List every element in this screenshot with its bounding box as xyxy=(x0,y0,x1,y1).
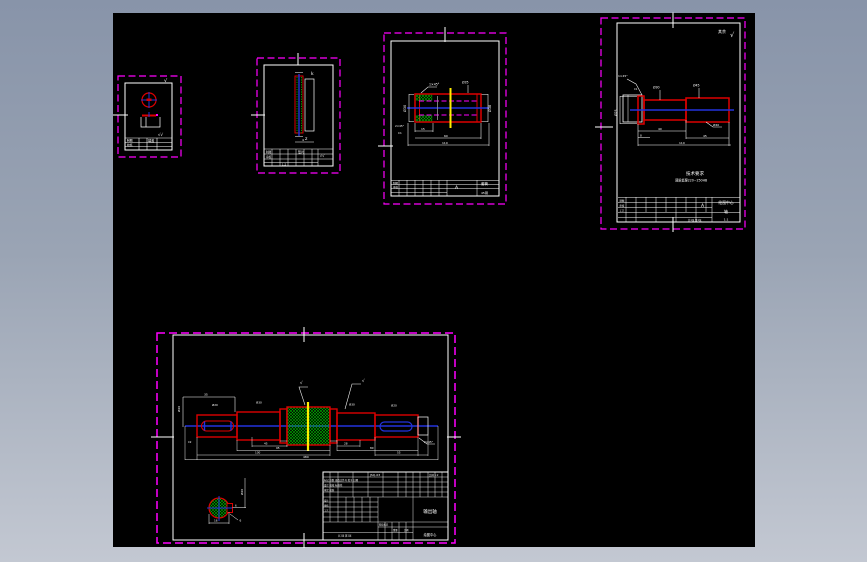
tb-part-name: 轴 xyxy=(724,208,728,214)
frame-gasket: k z 4 制图 审核 垫片 √√ 1:2 xyxy=(251,53,340,173)
dim-label: 4 xyxy=(302,138,304,142)
cad-application-window: 制图 校核 端盖 √ √√ k z 4 制图 审核 垫片 xyxy=(0,0,867,562)
tb-company: 绘图中心 xyxy=(424,532,438,537)
titleblock-c: A 套筒 45钢 制图 审核 xyxy=(391,180,499,196)
label-z: z xyxy=(305,137,308,142)
sec-leader: 6 xyxy=(240,519,242,523)
frame-output-shaft: 35 Ø20 Ø20 Ø30 Ø30 Ø20 √ √ C2 2×45° 45 2… xyxy=(151,327,461,548)
dim-b3: 45 xyxy=(703,134,707,138)
dim-b3: 95 xyxy=(276,446,280,450)
dim-right: Ø38 xyxy=(487,105,492,112)
dim-left: Ø25 xyxy=(613,109,618,116)
tb-part-name: 垫片 xyxy=(298,150,304,155)
note1: 2×45° xyxy=(395,124,405,128)
tb-material: 45钢 xyxy=(481,190,488,195)
hatch-bottom xyxy=(416,116,432,122)
section-cross xyxy=(207,496,232,521)
tb-l1: 设计 xyxy=(324,499,329,503)
dim-s2: Ø30 xyxy=(256,400,262,405)
tech-requirements-title: 技术要求 xyxy=(686,170,704,177)
tb-sheet: 共1张 第1张 xyxy=(338,534,352,538)
section-view-aa: Ø20 6 16 6 xyxy=(207,478,246,524)
sec-dim-rot: Ø20 xyxy=(239,489,244,495)
frame-shaft-small: 其余 √ 1×45° C1 Ø30 Ø45 Ø25 40 8 45 Ø40 11… xyxy=(595,13,745,233)
chamfer-label: 1×45° xyxy=(429,83,440,87)
titleblock-d: 绘图中心 轴 1:1 A 制图 审核 工艺 共1张 第1张 xyxy=(618,197,740,222)
tech-requirements-line: 调质处理220~250HB xyxy=(675,178,707,183)
dim-s5: Ø30 xyxy=(349,402,355,407)
roughness-mark: √ xyxy=(730,31,735,39)
tb-row3: 工艺 xyxy=(620,209,625,213)
dim-b1: 15 xyxy=(421,127,425,131)
roughness-1: √ xyxy=(300,380,303,385)
part-side-view xyxy=(141,117,160,127)
chamfer2-label: C1 xyxy=(634,87,638,91)
center-ticks xyxy=(378,27,445,146)
dim-leader: Ø40 xyxy=(713,122,719,127)
tb-row2: 审核 xyxy=(393,185,399,189)
tb-row2: 校核 xyxy=(127,143,133,147)
tb-mark: A xyxy=(701,203,705,209)
dim-b2: 28 xyxy=(344,442,348,446)
dim-b3: 110 xyxy=(442,141,448,145)
dim-b4: 80 xyxy=(370,446,374,450)
roughness-block: √√ xyxy=(158,132,164,137)
dim-keyway-pos: 35 xyxy=(204,393,208,397)
hub-mark xyxy=(147,99,152,102)
chamfer-right: 2×45° xyxy=(424,440,434,444)
tb-scale: 比例 xyxy=(404,528,409,532)
sheet-border xyxy=(384,33,506,204)
tb-row2: 审核 xyxy=(266,155,272,159)
dim-b5: 130 xyxy=(255,451,261,455)
frame-endcover: 制图 校核 端盖 √ √√ xyxy=(113,76,181,157)
tb-weight: 重量 xyxy=(393,528,398,532)
roughness-label: 其余 xyxy=(718,28,726,34)
tb-scale: 1:2 xyxy=(282,163,287,167)
aux-outline xyxy=(623,95,642,122)
dim-s1: Ø20 xyxy=(212,402,218,407)
dim-b2: 8 xyxy=(640,134,642,138)
titleblock-e: JSQ-03 标记 处数 更改文件号 签字 日期 设计 校核 标准化 审定 批准… xyxy=(323,472,448,540)
titleblock-a: 制图 校核 端盖 xyxy=(125,138,172,150)
dim-b6: 55 xyxy=(397,451,401,455)
tb-l2: 审核 xyxy=(324,504,329,508)
label-k: k xyxy=(311,71,314,77)
roughness-2: √ xyxy=(362,378,365,383)
dim-top: Ø35 xyxy=(462,80,469,85)
tb-row1: 制图 xyxy=(393,181,399,185)
dim-rot-left: Ø20 xyxy=(176,406,181,412)
dim-b1: 45 xyxy=(264,442,268,446)
tb-row1: 制图 xyxy=(266,150,272,154)
tb-roughness: √√ xyxy=(320,154,325,158)
tb-row2: 审核 xyxy=(620,204,625,208)
dim-mid: Ø30 xyxy=(653,85,660,90)
sec-dim-flat: 6 xyxy=(235,504,237,508)
inner-frame xyxy=(391,41,499,196)
aux-outline xyxy=(305,79,314,131)
chamfer-label: 1×45° xyxy=(618,74,628,78)
dim-b1: 40 xyxy=(658,127,662,131)
titleblock-b: 制图 审核 垫片 √√ 1:2 xyxy=(264,149,333,167)
frame-sleeve: Ø30 Ø38 1×45° Ø35 15 60 110 2×45° C1 A 套… xyxy=(378,27,506,204)
dim-left: Ø30 xyxy=(402,105,407,112)
tb-row4: 审定 批准 xyxy=(324,488,335,492)
hatch-top xyxy=(416,95,432,101)
tb-stage: 阶段标记 xyxy=(379,523,389,527)
dim-b2: 60 xyxy=(444,134,448,138)
tb-code: JSQ-03 xyxy=(369,473,380,477)
tb-scale: 1:1 xyxy=(724,218,729,222)
tb-row1: 制图 xyxy=(620,199,625,203)
sec-dim-width: 16 xyxy=(214,519,218,523)
dim-overall: 480 xyxy=(303,455,309,459)
dim-right: Ø45 xyxy=(693,83,700,88)
center-ticks xyxy=(251,53,298,115)
tb-sheet: 共1张 第1张 xyxy=(688,218,702,222)
tb-part-name: 套筒 xyxy=(481,181,489,186)
tb-mark: A xyxy=(455,185,459,191)
tb-row2: 标记 处数 更改文件号 签字 日期 xyxy=(324,478,359,482)
tb-scale-top: 比例 1:2 xyxy=(429,473,439,477)
note2: C1 xyxy=(398,131,402,135)
hidden-mark xyxy=(156,114,158,116)
tb-part-name: 输出轴 xyxy=(423,508,437,515)
dim-s6: Ø20 xyxy=(391,403,397,408)
chamfer-left: C2 xyxy=(188,440,192,444)
cad-drawing-layer: 制图 校核 端盖 √ √√ k z 4 制图 审核 垫片 xyxy=(0,0,867,562)
tb-l3: 工艺 xyxy=(324,509,329,513)
tb-row3: 设计 校核 标准化 xyxy=(324,483,343,487)
tb-part-name: 端盖 xyxy=(148,138,155,143)
tb-company: 绘图中心 xyxy=(718,200,733,205)
dim-overall: 110 xyxy=(679,141,685,145)
